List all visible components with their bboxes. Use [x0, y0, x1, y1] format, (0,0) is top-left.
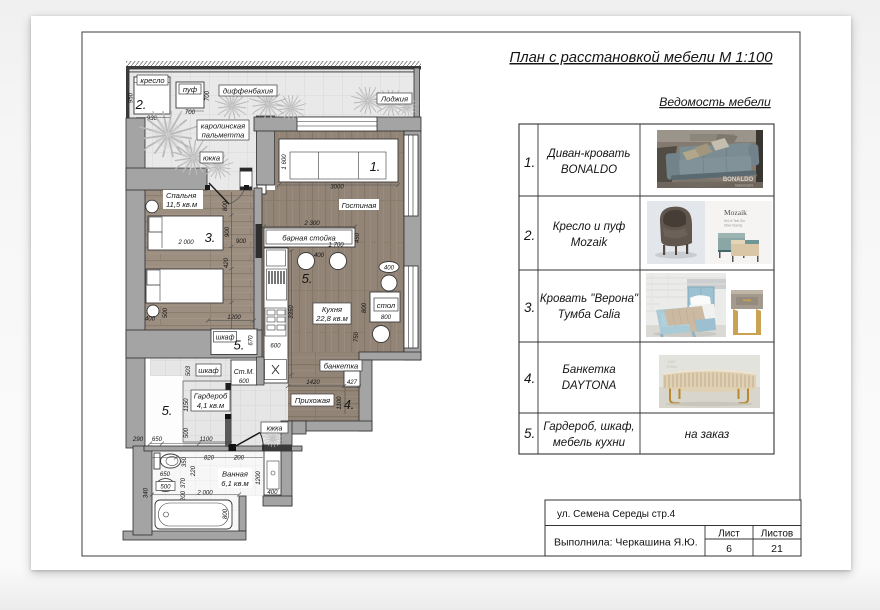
svg-text:22,8 кв.м: 22,8 кв.м: [315, 314, 349, 323]
svg-text:Кухня: Кухня: [322, 305, 342, 314]
svg-text:1420: 1420: [306, 379, 320, 386]
svg-text:2 300: 2 300: [303, 220, 320, 227]
svg-text:3.: 3.: [205, 230, 216, 245]
svg-text:Гостиная: Гостиная: [342, 201, 377, 210]
svg-text:юкка: юкка: [203, 154, 220, 163]
svg-text:503: 503: [185, 365, 192, 376]
svg-text:стол: стол: [377, 301, 396, 310]
svg-text:220: 220: [190, 465, 197, 477]
svg-text:Лоджия: Лоджия: [380, 95, 408, 104]
svg-text:450: 450: [354, 232, 361, 243]
svg-text:400: 400: [314, 252, 325, 259]
svg-text:2.: 2.: [135, 97, 147, 112]
svg-text:3.: 3.: [524, 300, 535, 315]
svg-text:700: 700: [185, 109, 196, 116]
svg-text:11,5 кв.м: 11,5 кв.м: [166, 200, 198, 209]
svg-text:Mozaik: Mozaik: [724, 208, 747, 217]
svg-text:1100: 1100: [336, 396, 343, 410]
svg-text:пуф: пуф: [183, 85, 198, 94]
svg-text:350: 350: [181, 456, 188, 467]
svg-text:1 600: 1 600: [281, 154, 288, 170]
svg-text:Выполнила: Черкашина Я.Ю.: Выполнила: Черкашина Я.Ю.: [554, 537, 698, 549]
svg-text:370: 370: [180, 477, 187, 488]
svg-text:1.: 1.: [524, 155, 535, 170]
svg-text:4,1 кв.м: 4,1 кв.м: [197, 401, 225, 410]
svg-text:шкаф: шкаф: [216, 335, 235, 342]
svg-text:400: 400: [384, 265, 395, 272]
svg-text:700: 700: [204, 90, 211, 101]
svg-text:Диван-кровать: Диван-кровать: [546, 148, 631, 160]
svg-text:TONA: TONA: [666, 364, 677, 369]
svg-text:Set of Teal Gio: Set of Teal Gio: [724, 219, 745, 223]
svg-text:каролинская: каролинская: [201, 122, 245, 131]
svg-text:5.: 5.: [302, 271, 313, 286]
svg-text:План с расстановкой мебели М 1: План с расстановкой мебели М 1:100: [510, 50, 774, 66]
svg-text:21: 21: [771, 543, 783, 555]
svg-text:Гардероб: Гардероб: [194, 392, 228, 401]
svg-text:ул. Семена Середы стр.4: ул. Семена Середы стр.4: [557, 509, 676, 520]
svg-text:200: 200: [233, 455, 245, 462]
svg-text:Лист: Лист: [718, 529, 740, 540]
svg-text:юкка: юкка: [267, 426, 283, 433]
svg-text:Ст.М.: Ст.М.: [234, 369, 255, 376]
svg-text:BONALDO: BONALDO: [723, 177, 754, 183]
svg-text:Спальня: Спальня: [166, 191, 196, 200]
svg-text:BONALDO: BONALDO: [561, 164, 617, 176]
svg-text:1200: 1200: [227, 314, 241, 321]
svg-text:400: 400: [267, 489, 278, 496]
svg-text:1200: 1200: [255, 471, 262, 485]
svg-text:Кресло и пуф: Кресло и пуф: [553, 221, 626, 233]
svg-text:1150: 1150: [183, 398, 190, 412]
svg-text:400: 400: [145, 316, 156, 323]
svg-text:650: 650: [160, 471, 171, 478]
svg-text:6: 6: [726, 543, 732, 555]
svg-text:950: 950: [128, 92, 135, 103]
svg-text:650: 650: [152, 436, 163, 443]
svg-text:5.: 5.: [162, 403, 173, 418]
svg-text:Mozaik: Mozaik: [571, 237, 609, 249]
svg-text:427: 427: [347, 379, 358, 386]
svg-text:2 000: 2 000: [196, 490, 213, 497]
svg-text:3000: 3000: [330, 184, 344, 191]
svg-text:500: 500: [162, 307, 169, 318]
svg-text:мебель кухни: мебель кухни: [553, 437, 626, 449]
svg-text:5.: 5.: [234, 338, 245, 353]
svg-text:Прихожая: Прихожая: [295, 396, 330, 405]
svg-text:5.: 5.: [524, 426, 535, 441]
svg-text:290: 290: [132, 436, 144, 443]
svg-text:600: 600: [270, 343, 281, 350]
svg-text:800: 800: [381, 314, 392, 321]
svg-text:600: 600: [239, 378, 250, 385]
svg-text:пальметта: пальметта: [202, 131, 245, 140]
svg-text:2 000: 2 000: [177, 239, 194, 246]
svg-text:Банкетка: Банкетка: [562, 364, 615, 376]
svg-text:Кровать "Верона": Кровать "Верона": [540, 293, 639, 305]
svg-text:на заказ: на заказ: [685, 429, 730, 441]
svg-text:800: 800: [361, 302, 368, 313]
svg-text:420: 420: [223, 257, 230, 268]
svg-text:1 700: 1 700: [328, 242, 344, 249]
svg-text:1100: 1100: [199, 436, 213, 443]
svg-text:Гардероб, шкаф,: Гардероб, шкаф,: [543, 421, 634, 433]
svg-text:2.: 2.: [523, 228, 535, 243]
svg-text:340: 340: [143, 487, 150, 498]
svg-text:800: 800: [222, 508, 229, 519]
svg-text:Тумба Calia: Тумба Calia: [558, 309, 621, 321]
svg-text:4.: 4.: [524, 371, 535, 386]
svg-text:750: 750: [353, 331, 360, 342]
svg-text:DAYTONA: DAYTONA: [562, 380, 617, 392]
svg-text:900: 900: [236, 238, 247, 245]
svg-text:Ванная: Ванная: [222, 470, 248, 479]
svg-text:диффенбахия: диффенбахия: [223, 87, 273, 96]
svg-text:500: 500: [183, 427, 190, 438]
svg-text:670: 670: [248, 335, 255, 346]
svg-text:italianissimi: italianissimi: [735, 184, 754, 188]
svg-text:6,1 кв.м: 6,1 кв.м: [221, 479, 249, 488]
svg-text:Olive+Sandy: Olive+Sandy: [724, 224, 743, 228]
svg-text:800: 800: [222, 200, 229, 211]
svg-text:кресло: кресло: [140, 76, 164, 85]
svg-text:шкаф: шкаф: [198, 366, 219, 375]
svg-text:900: 900: [224, 226, 231, 237]
svg-text:Листов: Листов: [761, 529, 794, 540]
svg-text:500: 500: [160, 484, 171, 491]
svg-text:1.: 1.: [370, 159, 381, 174]
svg-text:Ведомость мебели: Ведомость мебели: [659, 95, 771, 109]
svg-text:банкетка: банкетка: [324, 362, 359, 371]
svg-text:820: 820: [204, 455, 215, 462]
